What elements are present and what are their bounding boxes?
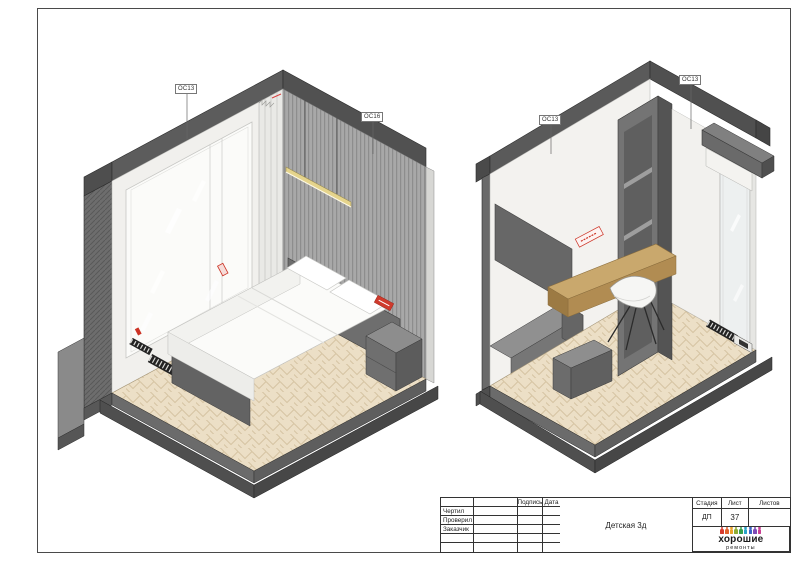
sheet-header: Лист <box>722 498 749 509</box>
bed-view <box>58 70 438 498</box>
sheets-value <box>749 509 790 527</box>
drawing-sheet: ОС13 ОС16 ОС13 ОС13 Подпись Дата Чертил … <box>0 0 800 566</box>
role-drew-label: Чертил <box>441 507 474 516</box>
title-block-cell <box>518 516 543 525</box>
logo-title: хорошие <box>718 535 763 545</box>
wall-edge-strip <box>426 167 434 383</box>
title-block-cell <box>543 507 560 516</box>
title-block-cell <box>518 525 543 534</box>
signature-column-header: Подпись <box>518 498 543 507</box>
title-block-cell <box>543 543 560 552</box>
title-block-cell <box>474 534 518 543</box>
logo-person-icon <box>758 527 762 534</box>
title-block-cell <box>441 498 474 507</box>
logo-person-icon <box>730 527 734 534</box>
opening-label-oc13-right-view-a: ОС13 <box>539 115 561 125</box>
logo-person-icon <box>744 527 748 534</box>
logo-person-icon <box>734 527 738 534</box>
logo-person-icon <box>753 527 757 534</box>
logo-person-icon <box>739 527 743 534</box>
title-block-cell <box>543 534 560 543</box>
title-block-cell <box>474 498 518 507</box>
title-block-cell <box>518 534 543 543</box>
stage-header: Стадия <box>693 498 722 509</box>
title-block-cell <box>518 507 543 516</box>
title-block-cell <box>474 543 518 552</box>
sheets-header: Листов <box>749 498 790 509</box>
company-logo: хорошие ремонты <box>693 527 790 552</box>
title-block-cell <box>474 516 518 525</box>
shelf-unit <box>618 96 672 376</box>
title-block-cell <box>518 543 543 552</box>
logo-person-icon <box>720 527 724 534</box>
title-block-stage-grid: Стадия Лист Листов ДП 37 хорошие ремонты <box>693 498 790 552</box>
document-title: Детская 3д <box>560 498 693 552</box>
sheet-number: 37 <box>722 509 749 527</box>
title-block-signature-grid: Подпись Дата Чертил Проверил Заказчик <box>441 498 560 552</box>
title-block-cell <box>543 516 560 525</box>
title-block-cell <box>543 525 560 534</box>
stage-value: ДП <box>693 509 722 527</box>
opening-label-oc13-left-view: ОС13 <box>175 84 197 94</box>
desk-view <box>476 61 774 473</box>
title-block-cell <box>441 543 474 552</box>
title-block: Подпись Дата Чертил Проверил Заказчик Де… <box>440 497 791 553</box>
logo-people-icons <box>720 527 762 534</box>
role-checked-label: Проверил <box>441 516 474 525</box>
opening-label-oc13-right-view-b: ОС13 <box>679 75 701 85</box>
title-block-cell <box>441 534 474 543</box>
title-block-cell <box>474 525 518 534</box>
date-column-header: Дата <box>543 498 560 507</box>
logo-person-icon <box>725 527 729 534</box>
role-client-label: Заказчик <box>441 525 474 534</box>
opening-label-oc16-left-view: ОС16 <box>361 112 383 122</box>
logo-person-icon <box>749 527 753 534</box>
title-block-cell <box>474 507 518 516</box>
logo-subtitle: ремонты <box>726 546 755 552</box>
